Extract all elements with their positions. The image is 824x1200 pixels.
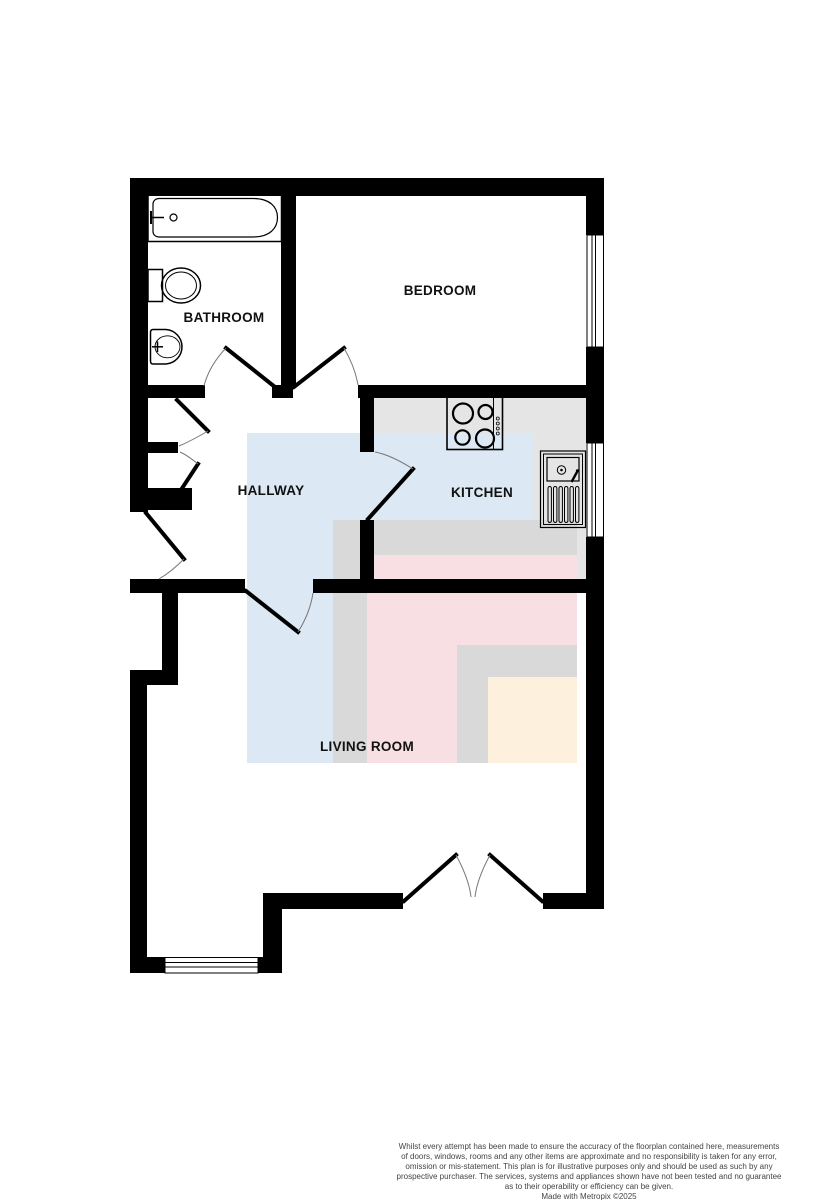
floorplan-page: BATHROOM BEDROOM HALLWAY KITCHEN LIVING … [0, 0, 824, 1200]
bathtub-drain [170, 214, 177, 221]
door-arc [456, 855, 471, 897]
sink-tap-head [576, 469, 579, 472]
living-window-frame [165, 958, 258, 974]
door-arc [179, 431, 208, 446]
living-room-window [165, 958, 258, 974]
wall-living-bottom-right [543, 893, 604, 909]
toilet-cistern [148, 270, 163, 302]
toilet-icon [148, 268, 201, 303]
door-leaf [294, 348, 344, 387]
disclaimer: Whilst every attempt has been made to en… [374, 1142, 804, 1200]
wall-step-vertical [263, 893, 282, 973]
bathtub-outer [148, 193, 282, 242]
door-arc [159, 559, 184, 579]
wall-right-c [586, 537, 604, 909]
bedroom-window [587, 235, 604, 347]
room-label-living-room: LIVING ROOM [320, 739, 414, 754]
door-arc [344, 348, 358, 385]
disclaimer-line: Whilst every attempt has been made to en… [374, 1142, 804, 1152]
door-swing-bathroom [204, 348, 275, 387]
bathtub-icon [148, 193, 282, 242]
kitchen-window [587, 443, 604, 537]
bathtub-inner [153, 199, 278, 238]
wall-bathroom-bedroom-divider [281, 196, 296, 387]
disclaimer-line: of doors, windows, rooms and any other i… [374, 1152, 804, 1162]
wall-right-a [586, 178, 604, 235]
door-arc [204, 348, 226, 386]
wall-living-bottom-left [282, 893, 403, 909]
toilet-bowl-inner [166, 272, 197, 299]
wall-left-upper [130, 178, 148, 512]
wall-cupboard-stub-2 [148, 488, 192, 510]
door-leaf [146, 513, 184, 559]
disclaimer-line: as to their operability or efficiency ca… [374, 1182, 804, 1192]
room-label-bedroom: BEDROOM [404, 283, 477, 298]
door-leaf [177, 400, 208, 431]
wall-hall-living-right [313, 579, 586, 593]
door-leaf [226, 348, 275, 387]
wall-notch-vertical [162, 593, 178, 672]
door-swing-bedroom [294, 348, 358, 387]
room-label-hallway: HALLWAY [238, 483, 305, 498]
door-arc [180, 452, 198, 464]
room-label-bathroom: BATHROOM [184, 310, 265, 325]
door-swing-french-left [404, 855, 471, 901]
wall-bottom-a [130, 957, 165, 973]
wall-right-b [586, 347, 604, 443]
disclaimer-line: omission or mis-statement. This plan is … [374, 1162, 804, 1172]
door-swing-entrance [146, 513, 184, 579]
wall-top [130, 178, 604, 196]
toilet-bowl-outer [162, 268, 201, 303]
wall-notch-horizontal [130, 670, 178, 685]
metropix-credit: Made with Metropix ©2025 [374, 1192, 804, 1200]
door-leaf [490, 855, 542, 901]
wall-kitchen-left-top [360, 396, 374, 452]
room-label-kitchen: KITCHEN [451, 485, 513, 500]
overlay-yellow [488, 677, 577, 763]
wall-bedroom-bottom [358, 385, 586, 398]
wall-bathroom-bottom [130, 385, 205, 398]
wall-hall-living-left [130, 579, 245, 593]
door-arc [475, 855, 490, 897]
basin-icon [151, 330, 182, 365]
door-swing-french-right [475, 855, 542, 901]
wall-left-living [130, 685, 147, 973]
door-swing-cupboard-1 [177, 400, 208, 446]
floorplan-svg: BATHROOM BEDROOM HALLWAY KITCHEN LIVING … [0, 0, 824, 1200]
door-leaf [404, 855, 456, 901]
disclaimer-line: prospective purchaser. The services, sys… [374, 1172, 804, 1182]
sink-plughole-dot [560, 469, 563, 472]
wall-cupboard-stub-1 [148, 442, 178, 453]
